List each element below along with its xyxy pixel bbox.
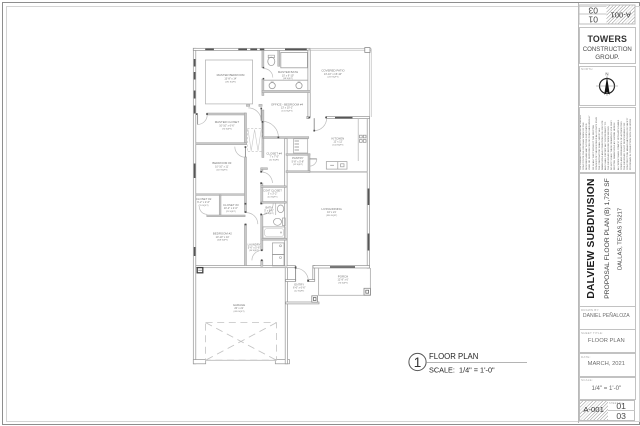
svg-text:(191 SQFT): (191 SQFT) [225,81,236,83]
svg-text:(131 SQFT): (131 SQFT) [282,111,293,113]
svg-text:(144 SQFT): (144 SQFT) [332,145,343,147]
svg-text:(48 SQFT): (48 SQFT) [264,213,274,215]
svg-text:FLOOR PLAN: FLOOR PLAN [429,352,478,361]
svg-text:6'-6" x 6'-6": 6'-6" x 6'-6" [293,287,306,290]
svg-text:(52 SQFT): (52 SQFT) [269,160,279,162]
svg-text:5'-8" x 5'-8": 5'-8" x 5'-8" [292,160,305,163]
svg-text:10'-10" x 6'-6": 10'-10" x 6'-6" [219,125,234,128]
svg-text:1: 1 [414,355,422,370]
svg-text:(25 SQFT): (25 SQFT) [226,211,236,213]
svg-text:(70 SQFT): (70 SQFT) [222,128,232,130]
svg-text:3' x 3'-2": 3' x 3'-2" [268,193,278,196]
svg-text:(15 SQFT): (15 SQFT) [199,205,209,207]
svg-text:(98 SQFT): (98 SQFT) [283,78,293,80]
svg-text:5'-6" x 5'-6": 5'-6" x 5'-6" [248,246,261,249]
svg-text:(42 SQFT): (42 SQFT) [294,291,304,293]
svg-text:(219 SQFT): (219 SQFT) [328,77,339,79]
svg-text:(76 SQFT): (76 SQFT) [338,283,348,285]
svg-text:(30 SQFT): (30 SQFT) [249,250,259,252]
svg-text:10' x 9'-10": 10' x 9'-10" [282,74,294,77]
svg-text:(32 SQFT): (32 SQFT) [293,164,303,166]
svg-text:12'-8" x 6': 12'-8" x 6' [338,279,349,282]
svg-text:20' x 21': 20' x 21' [234,307,244,310]
svg-text:16' x 21': 16' x 21' [327,211,337,214]
svg-text:(420 SQFT): (420 SQFT) [234,311,245,313]
svg-text:SCALE: 1/4" = 1'-0": SCALE: 1/4" = 1'-0" [429,365,495,374]
svg-text:10'-10" x 11': 10'-10" x 11' [215,166,229,169]
svg-text:5' x 9'-6": 5' x 9'-6" [264,209,274,212]
svg-text:10'-2" x 2'-6": 10'-2" x 2'-6" [224,207,238,210]
svg-text:6'-2" x 2'-6": 6'-2" x 2'-6" [197,201,210,204]
svg-text:(336 SQFT): (336 SQFT) [326,215,337,217]
svg-text:13'-10" x 15'-10": 13'-10" x 15'-10" [324,73,342,76]
svg-text:7' x 7'-5": 7' x 7'-5" [269,156,279,159]
svg-text:12' x 12': 12' x 12' [333,141,343,144]
svg-text:10'-10" x 10': 10'-10" x 10' [216,236,230,239]
svg-text:(119 SQFT): (119 SQFT) [216,169,227,171]
svg-text:(108 SQFT): (108 SQFT) [217,240,228,242]
svg-text:13'-8" x 14': 13'-8" x 14' [224,78,237,81]
svg-text:13' x 10'-1": 13' x 10'-1" [281,107,293,110]
svg-text:(10 SQFT): (10 SQFT) [268,196,278,198]
